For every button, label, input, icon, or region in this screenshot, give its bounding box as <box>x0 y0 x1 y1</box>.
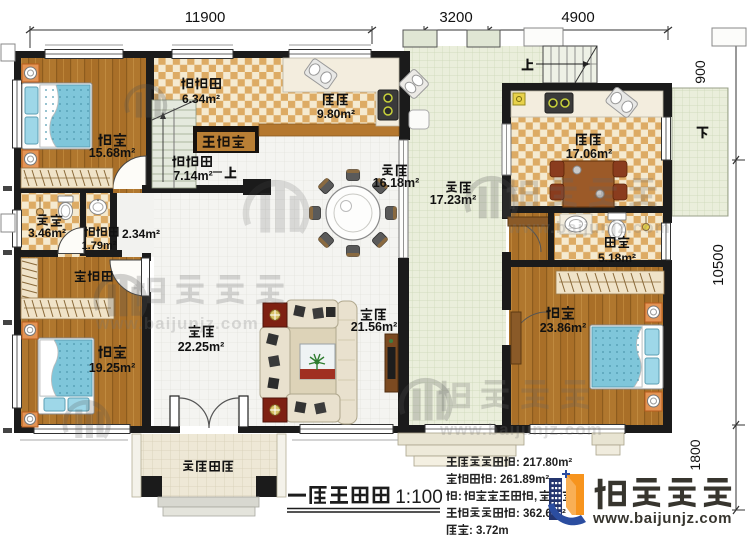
svg-text:9.80m²: 9.80m² <box>317 107 355 121</box>
svg-text:1.79m²: 1.79m² <box>82 240 117 252</box>
svg-text:3.46m²: 3.46m² <box>28 226 66 240</box>
svg-text:www.baijunjz.com: www.baijunjz.com <box>439 420 603 439</box>
svg-text:4900: 4900 <box>561 9 594 26</box>
svg-text:www.baijunjz.com: www.baijunjz.com <box>592 510 732 527</box>
svg-text:22.25m²: 22.25m² <box>178 340 225 354</box>
svg-text:5.18m²: 5.18m² <box>598 251 636 265</box>
svg-text:,: , <box>534 491 537 503</box>
svg-text:7.14m²: 7.14m² <box>173 169 213 183</box>
svg-text::: : <box>458 491 462 503</box>
svg-text:: 261.89m²: : 261.89m² <box>493 474 549 486</box>
svg-text:: 217.80m²: : 217.80m² <box>516 457 572 469</box>
svg-text:: 3.72m: : 3.72m <box>469 525 509 537</box>
svg-text:1:100: 1:100 <box>395 487 443 508</box>
svg-text:21.56m²: 21.56m² <box>351 320 398 334</box>
svg-text:19.25m²: 19.25m² <box>89 361 136 375</box>
svg-text:www.baijunjz.com: www.baijunjz.com <box>507 218 671 237</box>
svg-text:17.06m²: 17.06m² <box>566 147 613 161</box>
svg-text:900: 900 <box>692 60 708 84</box>
svg-text:15.68m²: 15.68m² <box>89 146 136 160</box>
svg-text:6.34m²: 6.34m² <box>182 92 220 106</box>
svg-text:1800: 1800 <box>687 439 703 470</box>
svg-text:www.baijunjz.com: www.baijunjz.com <box>95 314 259 333</box>
svg-text:10500: 10500 <box>710 244 727 286</box>
svg-text:11900: 11900 <box>185 9 226 26</box>
svg-text:3200: 3200 <box>439 9 472 26</box>
svg-text:23.86m²: 23.86m² <box>540 321 587 335</box>
svg-text:2.34m²: 2.34m² <box>122 227 160 241</box>
svg-text:16.18m²: 16.18m² <box>373 176 420 190</box>
